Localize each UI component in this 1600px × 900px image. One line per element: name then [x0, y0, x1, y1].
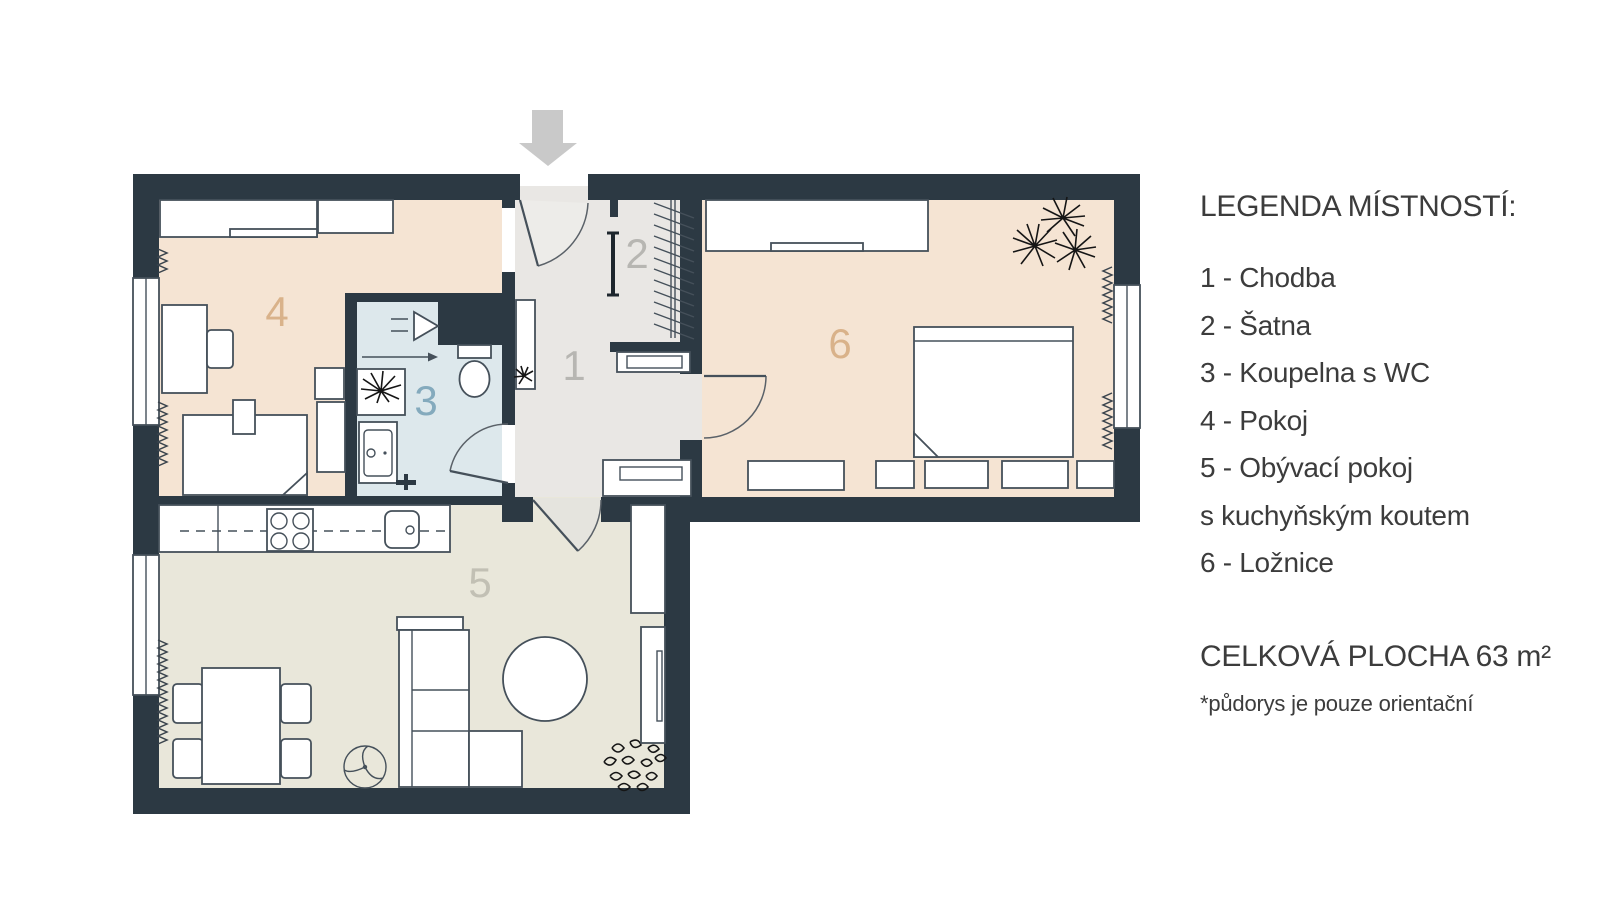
shelf-cabinet: [318, 200, 393, 233]
window-room4: [133, 278, 159, 425]
wall-hall-bottom-right: [601, 497, 1140, 522]
room-label-5: 5: [468, 559, 491, 606]
wall-closet-bottom: [610, 342, 680, 352]
entrance-arrow-icon: [519, 110, 577, 166]
kitchen-sink: [385, 511, 419, 548]
wall-bedroom-upper: [680, 200, 702, 374]
sofa-body: [399, 630, 469, 787]
nightstand: [233, 400, 255, 434]
wall-right-lower: [664, 497, 690, 814]
side-cabinet: [315, 368, 344, 399]
washing-machine: [359, 422, 397, 483]
tall-cabinet: [317, 402, 345, 472]
legend-item-1: 1 - Chodba: [1200, 254, 1470, 302]
room-label-6: 6: [828, 320, 851, 367]
wall-closet-stub: [610, 200, 618, 217]
legend-item-4: 4 - Pokoj: [1200, 397, 1470, 445]
window-room6: [1114, 285, 1140, 428]
wardrobe-step: [230, 229, 317, 237]
legend-item-5-cont: s kuchyňským koutem: [1200, 492, 1470, 540]
wall-bath-chunk: [438, 293, 502, 345]
bed-drawer-right: [1002, 461, 1068, 488]
stove: [267, 509, 313, 551]
chair[interactable]: [173, 684, 203, 723]
legend-heading: LEGENDA MÍSTNOSTÍ:: [1200, 190, 1516, 224]
wall-bottom: [133, 788, 690, 814]
legend-list: 1 - Chodba 2 - Šatna 3 - Koupelna s WC 4…: [1200, 254, 1470, 587]
bed-drawer-left: [925, 461, 988, 488]
entrance-threshold: [520, 174, 588, 186]
sofa-chaise: [469, 731, 522, 787]
desk-chair[interactable]: [207, 330, 233, 368]
potted-plant: [357, 369, 405, 415]
room-label-3: 3: [414, 377, 437, 424]
legend-item-6: 6 - Ložnice: [1200, 539, 1470, 587]
toilet: [458, 345, 491, 397]
wall-hall-left-mid: [502, 272, 515, 417]
wall-top-left: [133, 174, 520, 200]
wall-partition-kitchen: [159, 496, 509, 505]
total-area-text: CELKOVÁ PLOCHA 63 m²: [1200, 640, 1551, 674]
wall-bath-bottom-stub: [502, 483, 515, 505]
closet-shelf: [617, 352, 690, 372]
tv-bench: [641, 627, 665, 743]
room-label-4: 4: [265, 288, 288, 335]
chair[interactable]: [281, 684, 311, 723]
room-label-2: 2: [625, 230, 648, 277]
desk: [162, 305, 207, 393]
legend-item-3: 3 - Koupelna s WC: [1200, 349, 1470, 397]
wall-bath-top: [345, 293, 438, 302]
legend-item-5: 5 - Obývací pokoj: [1200, 444, 1470, 492]
bedroom-side-table: [1077, 461, 1114, 488]
wall-hall-left-stub: [502, 200, 515, 208]
wall-bath-left: [345, 293, 357, 497]
bedroom-stool: [876, 461, 914, 488]
chair[interactable]: [281, 739, 311, 778]
legend-item-2: 2 - Šatna: [1200, 302, 1470, 350]
bedroom-bench: [748, 461, 844, 490]
sideboard: [603, 460, 691, 496]
window-room5: [133, 555, 159, 695]
floor-plan-page: 4 3 1 2 6 5 LEGENDA MÍSTNOSTÍ: 1 - Chodb…: [0, 0, 1600, 900]
wall-left: [133, 174, 159, 814]
dining-table: [202, 668, 280, 784]
sofa-armrest: [397, 617, 463, 630]
double-bed: [914, 327, 1073, 457]
wall-top-right: [588, 174, 1140, 200]
disclaimer-text: *půdorys je pouze orientační: [1200, 691, 1473, 717]
bedroom-wardrobe-step: [771, 243, 863, 251]
coffee-table: [503, 637, 587, 721]
chair[interactable]: [173, 739, 203, 778]
room-label-1: 1: [562, 342, 585, 389]
storage-cabinet: [631, 505, 665, 613]
kitchen-counter: [159, 505, 450, 552]
